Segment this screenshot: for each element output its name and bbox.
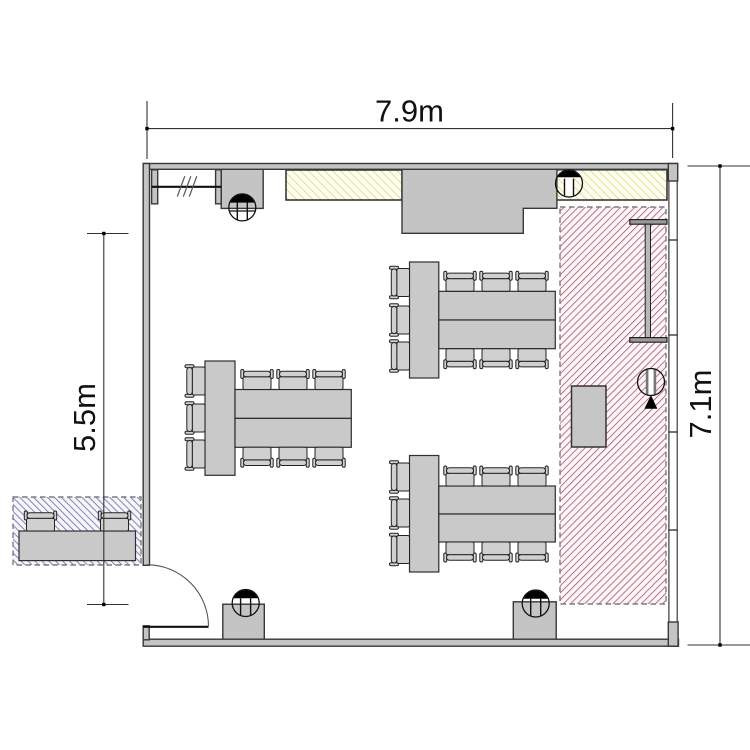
svg-text:5.5m: 5.5m xyxy=(67,383,102,452)
svg-text:7.9m: 7.9m xyxy=(375,94,444,129)
svg-text:7.1m: 7.1m xyxy=(683,370,718,439)
